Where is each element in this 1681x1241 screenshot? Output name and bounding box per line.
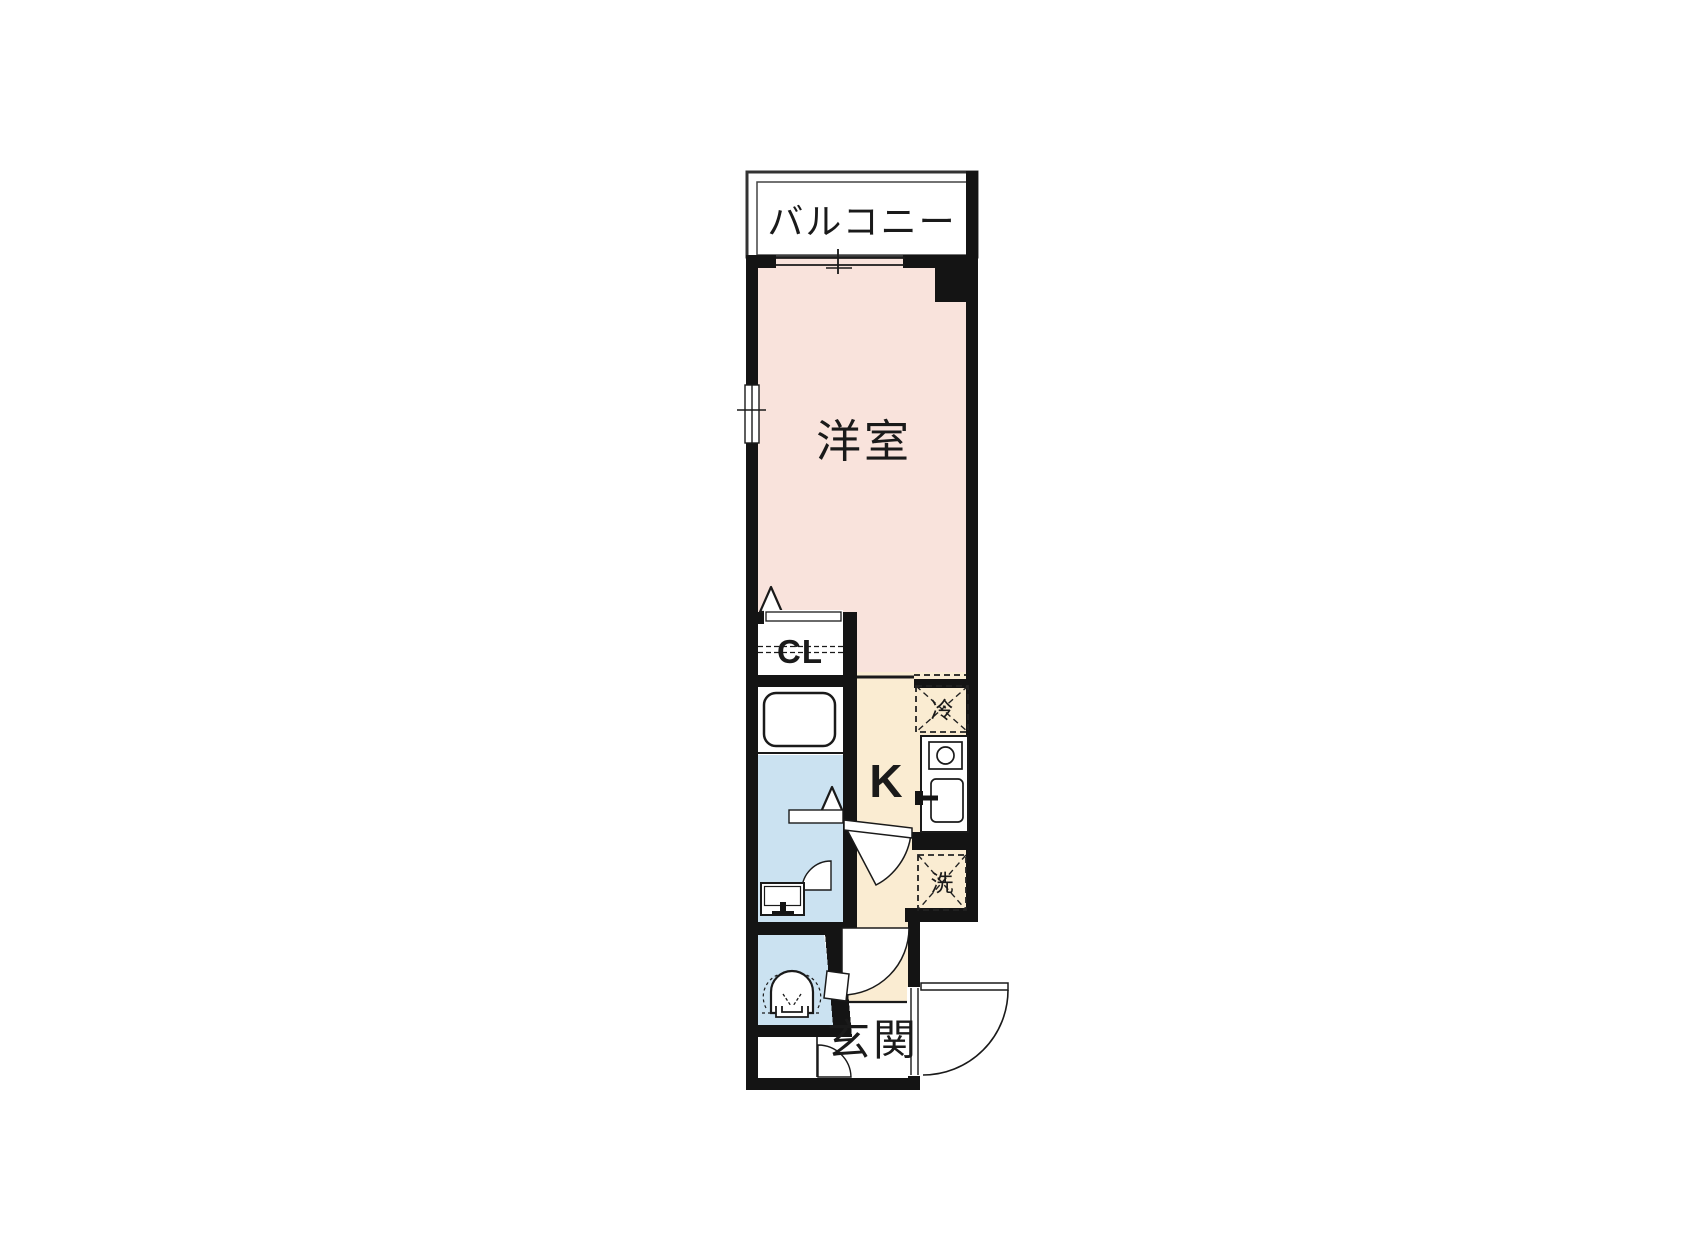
wall-bottom [746, 1078, 920, 1090]
pillar-top-right [935, 255, 978, 302]
toilet-door-leaf [824, 971, 849, 1001]
wall-left-lower [746, 443, 758, 1090]
refrigerator-label: 冷 [931, 697, 954, 723]
stove-burner-icon [937, 747, 954, 764]
entrance-door-leaf [921, 983, 1008, 990]
wall-closet-bottom [746, 675, 857, 687]
entrance-door-arc [923, 990, 1008, 1075]
kitchen-label: K [869, 755, 902, 807]
closet-label: CL [777, 633, 823, 670]
wall-toilet-bottom [746, 1025, 836, 1037]
bathtub-icon [764, 693, 835, 746]
balcony-label: バルコニー [767, 201, 956, 242]
wall-step-right [905, 908, 978, 922]
washing-machine-label: 洗 [931, 870, 954, 896]
wall-top-stub-left [746, 255, 776, 268]
wall-top-stub-right [903, 255, 937, 268]
wall-counter-washer-divider [912, 832, 966, 850]
closet-door-leaf [766, 612, 841, 621]
floor-plan: バルコニー 洋室 CL K 冷 洗 玄関 [0, 0, 1681, 1241]
washbasin-icon [761, 883, 804, 915]
wall-left-upper [746, 255, 758, 385]
western-room-lower [857, 613, 966, 676]
wall-leftcol-right [843, 612, 857, 935]
western-room-label: 洋室 [816, 416, 912, 467]
wall-entrance-right-upper [908, 922, 920, 988]
kitchen-counter [915, 736, 968, 832]
entrance-label: 玄関 [827, 1017, 919, 1065]
floor-plan-page: バルコニー 洋室 CL K 冷 洗 玄関 [0, 0, 1681, 1241]
bath-door-bar [789, 810, 843, 823]
entrance-door-icon [907, 983, 1008, 1076]
